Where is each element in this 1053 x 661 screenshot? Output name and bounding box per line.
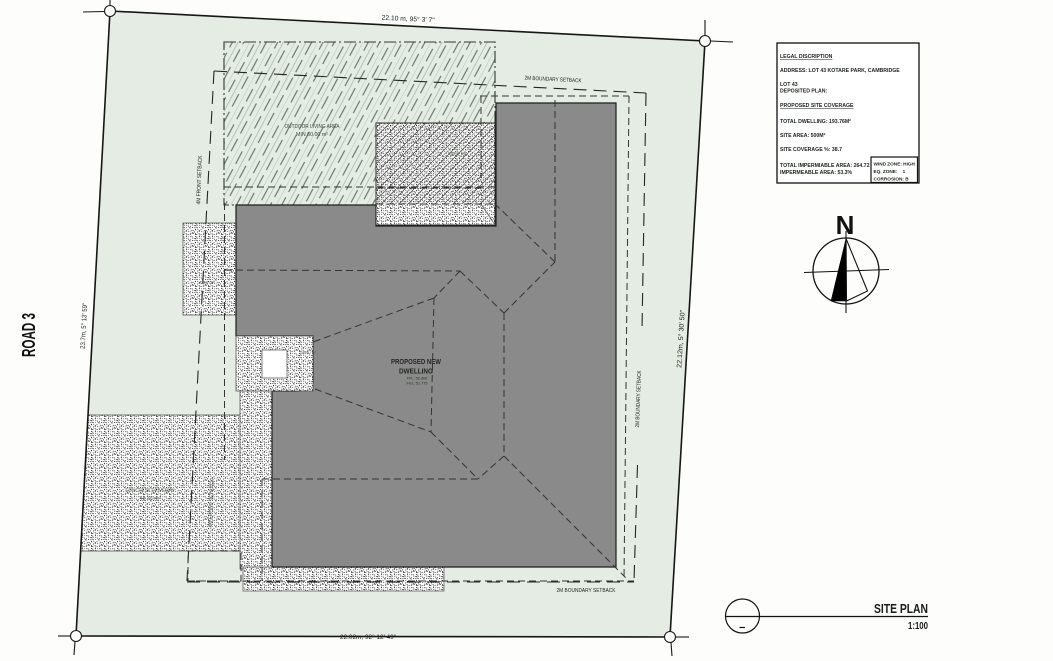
- svg-text:ADDRESS: LOT 43 KOTARE PARK, C: ADDRESS: LOT 43 KOTARE PARK, CAMBRIDGE: [780, 68, 900, 74]
- svg-text:OUTDOOR LIVING AREA: OUTDOOR LIVING AREA: [285, 124, 340, 130]
- svg-text:CORROSION: B: CORROSION: B: [874, 177, 910, 182]
- svg-text:36.80 m²: 36.80 m²: [448, 151, 467, 156]
- svg-text:SITE AREA: 500M²: SITE AREA: 500M²: [780, 133, 826, 139]
- svg-text:22.02m, 92° 12' 49": 22.02m, 92° 12' 49": [340, 633, 397, 641]
- svg-text:5.96 m²: 5.96 m²: [300, 350, 316, 355]
- svg-text:SITE COVERAGE %: 38.7: SITE COVERAGE %: 38.7: [780, 147, 842, 153]
- svg-text:CONCRETE DRIVEWAY: CONCRETE DRIVEWAY: [126, 488, 176, 494]
- svg-text:PROPOSED SITE COVERAGE: PROPOSED SITE COVERAGE: [780, 103, 854, 109]
- svg-text:ROAD 3: ROAD 3: [19, 313, 39, 357]
- svg-text:WIND ZONE: HIGH: WIND ZONE: HIGH: [874, 162, 916, 167]
- svg-text:1:100: 1:100: [908, 620, 928, 632]
- svg-text:LEGAL DISCRIPTION: LEGAL DISCRIPTION: [780, 54, 833, 60]
- svg-text:FFL: 52.300: FFL: 52.300: [407, 377, 427, 381]
- svg-text:LOT 43: LOT 43: [780, 82, 798, 88]
- svg-text:IMPERMEABLE AREA: 53.3%: IMPERMEABLE AREA: 53.3%: [780, 170, 853, 176]
- svg-text:7.20 m²: 7.20 m²: [199, 280, 215, 285]
- svg-text:PROPOSED NEW: PROPOSED NEW: [391, 357, 442, 366]
- svg-text:SITE PLAN: SITE PLAN: [874, 601, 928, 616]
- svg-text:FGL: 51.775: FGL: 51.775: [406, 382, 427, 386]
- svg-text:48.36 m²: 48.36 m²: [140, 496, 161, 502]
- svg-text:DEPOSITED PLAN:: DEPOSITED PLAN:: [780, 89, 828, 95]
- svg-text:2M BOUNDARY SETBACK: 2M BOUNDARY SETBACK: [557, 588, 616, 594]
- svg-text:TOTAL DWELLING: 193.76M²: TOTAL DWELLING: 193.76M²: [780, 119, 851, 125]
- svg-text:DWELLING: DWELLING: [399, 367, 433, 376]
- svg-text:EQ. ZONE: 1: EQ. ZONE: 1: [874, 169, 906, 174]
- svg-text:TOTAL IMPERMIABLE AREA: 264.72: TOTAL IMPERMIABLE AREA: 264.72: [780, 163, 870, 169]
- svg-text:MIN 60.00 m²: MIN 60.00 m²: [296, 132, 328, 138]
- svg-text:N: N: [836, 210, 855, 240]
